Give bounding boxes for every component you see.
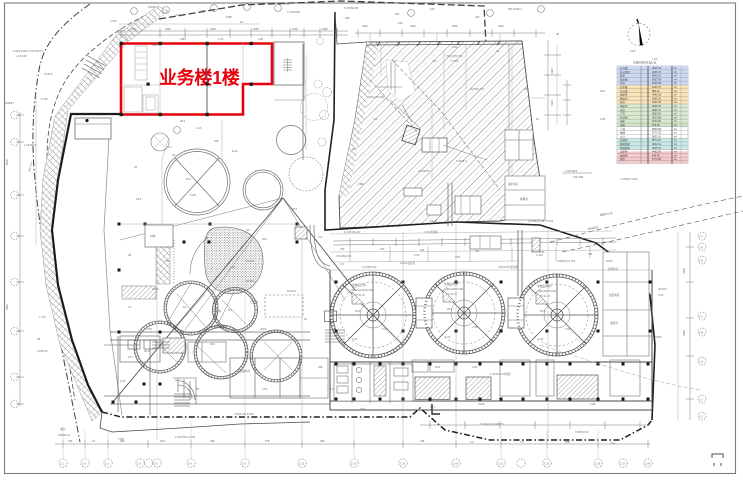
svg-text:1.3X45.6: 1.3X45.6 <box>456 159 467 163</box>
svg-text:办公用房: 办公用房 <box>620 70 631 74</box>
svg-text:1750: 1750 <box>146 327 152 331</box>
svg-text:进水泵房: 进水泵房 <box>508 182 519 186</box>
svg-text:29.5: 29.5 <box>360 407 366 411</box>
svg-text:985: 985 <box>120 439 125 443</box>
svg-text:5600: 5600 <box>5 159 9 165</box>
svg-text:综合楼: 综合楼 <box>620 66 628 70</box>
svg-text:1.3X: 1.3X <box>445 335 451 339</box>
svg-text:387.5/269.4: 387.5/269.4 <box>508 7 522 11</box>
svg-text:9822.41: 9822.41 <box>652 135 662 138</box>
svg-text:X.05: X.05 <box>382 327 388 331</box>
svg-text:0.9X: 0.9X <box>658 293 664 297</box>
svg-text:9565.80: 9565.80 <box>652 113 662 116</box>
svg-text:X.05: X.05 <box>414 253 420 257</box>
svg-text:29.75m: 29.75m <box>246 279 255 283</box>
svg-text:29.9: 29.9 <box>160 439 166 443</box>
svg-text:X9.05: X9.05 <box>430 219 437 223</box>
svg-text:1-C: 1-C <box>60 462 64 466</box>
svg-text:2946.47: 2946.47 <box>652 71 662 74</box>
svg-text:4000: 4000 <box>498 24 504 28</box>
svg-text:m²: m² <box>674 143 677 146</box>
svg-text:430: 430 <box>398 21 403 25</box>
svg-text:588: 588 <box>565 440 570 444</box>
svg-text:1-B: 1-B <box>699 331 703 335</box>
svg-text:400: 400 <box>395 12 400 16</box>
svg-text:760: 760 <box>380 247 385 251</box>
svg-text:2980: 2980 <box>682 330 686 336</box>
svg-text:29.5: 29.5 <box>435 365 441 369</box>
svg-text:938: 938 <box>345 16 350 20</box>
svg-text:1-D: 1-D <box>699 259 703 263</box>
svg-text:1.3X: 1.3X <box>120 379 126 383</box>
svg-text:2.5XX705 配水井: 2.5XX705 配水井 <box>498 265 518 269</box>
svg-text:8574.87: 8574.87 <box>652 139 662 142</box>
svg-text:1.3X: 1.3X <box>352 337 358 341</box>
svg-text:xS: xS <box>92 439 95 443</box>
svg-text:业务楼1楼: 业务楼1楼 <box>159 67 240 88</box>
svg-text:m²: m² <box>674 82 677 85</box>
svg-text:XX750 机修间: XX750 机修间 <box>210 325 227 329</box>
svg-text:XX05: XX05 <box>655 335 662 339</box>
svg-text:3921.60: 3921.60 <box>652 101 662 104</box>
svg-text:广场: 广场 <box>620 127 626 131</box>
svg-text:4000: 4000 <box>452 24 458 28</box>
svg-text:XX9: XX9 <box>455 255 460 259</box>
svg-text:4.05: 4.05 <box>230 265 236 269</box>
svg-text:5400: 5400 <box>165 27 171 31</box>
svg-text:1800: 1800 <box>322 27 328 31</box>
svg-text:m²: m² <box>674 154 677 157</box>
svg-text:97Q-27/9.7Q9: 97Q-27/9.7Q9 <box>368 95 385 99</box>
svg-text:298: 298 <box>210 439 215 443</box>
svg-text:8495.26: 8495.26 <box>652 97 662 100</box>
svg-text:15000: 15000 <box>148 5 156 9</box>
svg-text:1-27: 1-27 <box>620 462 626 466</box>
svg-text:宿舍楼: 宿舍楼 <box>620 77 628 81</box>
svg-text:0.98: 0.98 <box>258 37 264 41</box>
svg-text:4.6X0.52: 4.6X0.52 <box>37 349 48 353</box>
svg-text:499.99: 499.99 <box>652 154 660 157</box>
svg-text:4.5X: 4.5X <box>262 387 268 391</box>
svg-text:建筑面积: 建筑面积 <box>620 142 631 146</box>
svg-text:7.0: 7.0 <box>520 440 524 444</box>
svg-text:容积率: 容积率 <box>620 150 628 154</box>
svg-text:4800: 4800 <box>5 304 9 310</box>
svg-text:1-1: 1-1 <box>699 398 703 402</box>
svg-text:885.91: 885.91 <box>652 90 660 93</box>
svg-text:m²: m² <box>674 151 677 154</box>
svg-text:Tw/8: Tw/8 <box>190 193 196 197</box>
svg-text:1-21: 1-21 <box>498 462 504 466</box>
svg-text:193.7/08: 193.7/08 <box>573 175 584 179</box>
svg-text:298: 298 <box>320 439 325 443</box>
svg-text:1.3XX: 1.3XX <box>536 253 543 257</box>
svg-text:综合楼: 综合楼 <box>620 89 628 93</box>
svg-text:m²: m² <box>674 86 677 89</box>
svg-text:4693.18: 4693.18 <box>652 94 662 97</box>
svg-text:1-3X: 1-3X <box>652 57 658 61</box>
svg-text:1-F: 1-F <box>699 235 703 239</box>
svg-text:4.7X05(平) 38.7X9.09: 4.7X05(平) 38.7X9.09 <box>528 219 554 223</box>
svg-text:X05: X05 <box>318 365 323 369</box>
svg-text:938: 938 <box>152 43 157 47</box>
svg-text:1-29.5XXX: 1-29.5XXX <box>24 143 37 147</box>
svg-text:29.5XX: 29.5XX <box>658 287 667 291</box>
svg-text:6m: 6m <box>183 305 187 309</box>
svg-text:密度: 密度 <box>620 157 626 161</box>
svg-text:1-9: 1-9 <box>242 462 246 466</box>
svg-text:1.3X: 1.3X <box>196 126 202 130</box>
svg-text:32.4X9.57: 32.4X9.57 <box>418 169 430 173</box>
svg-text:752: 752 <box>68 439 73 443</box>
svg-text:7.3X05(X) X.709: 7.3X05(X) X.709 <box>556 259 576 263</box>
svg-text:2x8700 wr: 2x8700 wr <box>58 433 70 437</box>
svg-text:8410.36: 8410.36 <box>652 82 662 85</box>
svg-text:29.5: 29.5 <box>540 309 546 313</box>
svg-text:1-12: 1-12 <box>299 462 305 466</box>
svg-text:m²: m² <box>674 109 677 112</box>
svg-text:29.5: 29.5 <box>262 237 268 241</box>
svg-text:1.3X05(X 1.02): 1.3X05(X 1.02) <box>620 177 638 181</box>
svg-text:生物反应池3: 生物反应池3 <box>537 284 552 288</box>
svg-text:6914.58: 6914.58 <box>652 116 662 119</box>
svg-text:仓库: 仓库 <box>620 108 626 112</box>
svg-text:2980: 2980 <box>682 268 686 274</box>
svg-text:5777.52: 5777.52 <box>652 132 662 135</box>
svg-text:m²: m² <box>674 90 677 93</box>
svg-text:m²: m² <box>674 78 677 81</box>
svg-text:X.05: X.05 <box>565 327 571 331</box>
svg-text:38.5: 38.5 <box>292 207 298 211</box>
svg-text:X.3X9/4.6 X=398.75: X.3X9/4.6 X=398.75 <box>480 422 504 426</box>
svg-text:总面积: 总面积 <box>620 138 628 142</box>
svg-text:9714.52: 9714.52 <box>652 120 662 123</box>
svg-text:575: 575 <box>265 439 270 443</box>
svg-text:4.05(9.4X) 9.8X2: 4.05(9.4X) 9.8X2 <box>234 412 254 416</box>
svg-text:传达室: 传达室 <box>620 115 628 119</box>
svg-text:9.0: 9.0 <box>176 13 180 17</box>
svg-text:753.82: 753.82 <box>652 124 660 127</box>
svg-text:配电间: 配电间 <box>620 96 628 100</box>
svg-text:7.7XFS100: 7.7XFS100 <box>287 10 301 14</box>
svg-text:0.9X: 0.9X <box>472 365 478 369</box>
svg-text:6820.68: 6820.68 <box>652 128 662 131</box>
svg-text:X9.7: X9.7 <box>430 405 436 409</box>
svg-text:2815.79: 2815.79 <box>652 67 662 70</box>
svg-text:XX-9.5: XX-9.5 <box>246 259 254 263</box>
svg-text:29.5: 29.5 <box>447 307 453 311</box>
svg-text:6837.99: 6837.99 <box>652 78 662 81</box>
svg-text:7x8700=XX: 7x8700=XX <box>575 430 589 434</box>
svg-text:变配电间: 变配电间 <box>609 293 620 297</box>
svg-text:m²: m² <box>674 97 677 100</box>
svg-text:鼓风机房: 鼓风机房 <box>608 267 619 271</box>
svg-text:X=3.05(9.4X): X=3.05(9.4X) <box>336 254 351 258</box>
svg-text:污泥井: 污泥井 <box>250 300 258 304</box>
svg-text:1.3X: 1.3X <box>538 337 544 341</box>
svg-text:3205.40: 3205.40 <box>652 105 662 108</box>
svg-text:1-23: 1-23 <box>544 462 550 466</box>
svg-text:m²: m² <box>674 71 677 74</box>
svg-text:9.7: 9.7 <box>168 145 172 149</box>
svg-text:0.98: 0.98 <box>590 402 596 406</box>
svg-text:门卫: 门卫 <box>620 112 626 116</box>
svg-text:30009.7: 30009.7 <box>5 101 15 105</box>
svg-text:1-3: 1-3 <box>137 462 141 466</box>
svg-text:X.05: X.05 <box>600 117 606 121</box>
svg-text:7.7X2: 7.7X2 <box>39 315 46 319</box>
svg-text:X9.5: X9.5 <box>136 197 142 201</box>
svg-text:7xxL: 7xxL <box>610 441 616 445</box>
svg-text:6840.21: 6840.21 <box>652 75 662 78</box>
svg-text:1-26: 1-26 <box>595 462 601 466</box>
svg-text:绿化: 绿化 <box>620 119 626 123</box>
svg-text:1-3.05(9.4X): 1-3.05(9.4X) <box>362 265 377 269</box>
svg-text:20.7: 20.7 <box>128 355 134 359</box>
svg-text:2750: 2750 <box>130 27 136 31</box>
svg-text:锅炉房: 锅炉房 <box>620 104 628 108</box>
svg-text:2.750: 2.750 <box>110 19 117 23</box>
svg-text:1380: 1380 <box>226 15 232 19</box>
svg-text:1-6: 1-6 <box>188 462 192 466</box>
svg-text:m²: m² <box>674 113 677 116</box>
svg-text:m²: m² <box>674 158 677 161</box>
svg-text:m²: m² <box>674 67 677 70</box>
svg-text:1-16: 1-16 <box>400 462 406 466</box>
svg-text:1-E: 1-E <box>699 246 703 250</box>
svg-text:-7.708: -7.708 <box>40 97 48 101</box>
svg-text:938.1: 938.1 <box>180 37 187 41</box>
svg-text:污泥脱水间: 污泥脱水间 <box>237 369 250 373</box>
svg-text:绿地率: 绿地率 <box>620 153 628 157</box>
svg-text:6772.68: 6772.68 <box>652 158 662 161</box>
svg-text:38.2: 38.2 <box>180 119 186 123</box>
svg-text:2.4XX705 +1.105: 2.4XX705 +1.105 <box>175 435 196 439</box>
svg-text:1-2: 1-2 <box>699 415 703 419</box>
svg-text:1.3: 1.3 <box>330 387 334 391</box>
svg-text:7.7X05: 7.7X05 <box>450 59 459 63</box>
svg-text:1.3X9/4.6 XX管廊: 1.3X9/4.6 XX管廊 <box>490 372 511 376</box>
svg-text:m²: m² <box>674 147 677 150</box>
svg-text:29.5: 29.5 <box>355 309 361 313</box>
svg-text:m²: m² <box>674 128 677 131</box>
svg-text:400: 400 <box>475 15 480 19</box>
svg-text:3050: 3050 <box>253 27 259 31</box>
svg-text:298: 298 <box>420 439 425 443</box>
svg-text:2400: 2400 <box>292 27 298 31</box>
svg-text:1-19: 1-19 <box>453 462 459 466</box>
svg-text:X=30.5: X=30.5 <box>44 72 53 76</box>
svg-text:kxxk: kxxk <box>232 149 238 153</box>
svg-text:3.05: 3.05 <box>452 45 458 49</box>
svg-text:X.0: X.0 <box>340 262 344 266</box>
svg-text:1Pa/4.0: 1Pa/4.0 <box>287 289 296 293</box>
svg-text:1860: 1860 <box>550 100 554 106</box>
svg-text:38.4: 38.4 <box>210 342 216 346</box>
svg-text:1-13: 1-13 <box>351 462 357 466</box>
svg-text:泵房: 泵房 <box>620 100 626 104</box>
svg-text:394: 394 <box>588 252 593 256</box>
svg-text:42M×22M×6.5M: 42M×22M×6.5M <box>444 287 463 291</box>
svg-text:m²: m² <box>674 101 677 104</box>
svg-text:m²: m² <box>674 116 677 119</box>
svg-text:(都st: (都st <box>60 427 66 431</box>
svg-text:0.9X: 0.9X <box>630 49 636 53</box>
svg-text:29.5X: 29.5X <box>152 287 159 291</box>
svg-text:240: 240 <box>430 7 435 11</box>
svg-text:30m9: 30m9 <box>260 327 267 331</box>
svg-text:760: 760 <box>432 59 437 63</box>
svg-text:R=0: R=0 <box>186 177 191 181</box>
svg-text:+4.3X,29: +4.3X,29 <box>16 54 27 58</box>
svg-text:1-28: 1-28 <box>645 462 651 466</box>
svg-text:用地面积: 用地面积 <box>620 146 631 150</box>
svg-text:29.05: 29.05 <box>606 259 613 263</box>
svg-text:4230.74: 4230.74 <box>652 86 662 89</box>
svg-text:X-9: X-9 <box>318 235 323 239</box>
svg-text:1-A: 1-A <box>699 360 703 364</box>
svg-text:2.4X9.4 309.4 709.2XXX7: 2.4X9.4 309.4 709.2XXX7 <box>13 49 44 53</box>
svg-text:42M×22.0M×6.5M: 42M×22.0M×6.5M <box>352 288 373 292</box>
svg-text:8095.37: 8095.37 <box>652 109 662 112</box>
svg-text:值班室: 值班室 <box>620 93 628 97</box>
svg-text:m²: m² <box>674 94 677 97</box>
svg-text:4000: 4000 <box>362 24 368 28</box>
svg-text:车库: 车库 <box>620 81 626 85</box>
svg-text:5.7X9/93.05: 5.7X9/93.05 <box>344 6 359 10</box>
svg-text:X.05: X.05 <box>472 325 478 329</box>
svg-text:合计: 合计 <box>620 134 626 138</box>
svg-text:m²: m² <box>674 124 677 127</box>
svg-text:m²: m² <box>674 132 677 135</box>
svg-text:97Q-27/9.7QX: 97Q-27/9.7QX <box>446 54 463 58</box>
svg-text:道路: 道路 <box>620 123 626 127</box>
svg-text:4000: 4000 <box>410 24 416 28</box>
svg-text:加药间: 加药间 <box>610 321 618 325</box>
svg-text:0.9: 0.9 <box>470 440 474 444</box>
svg-text:m²: m² <box>674 139 677 142</box>
svg-text:脱水: 脱水 <box>216 309 222 313</box>
svg-text:1-A: 1-A <box>82 462 86 466</box>
svg-text:5400: 5400 <box>210 27 216 31</box>
svg-text:29.5: 29.5 <box>600 89 606 93</box>
svg-text:X.0: X.0 <box>246 228 250 232</box>
svg-text:m²: m² <box>674 135 677 138</box>
svg-text:1-2: 1-2 <box>105 462 109 466</box>
svg-text:1380: 1380 <box>358 182 364 186</box>
svg-text:750: 750 <box>340 247 345 251</box>
svg-text:2.3XX48.9: 2.3XX48.9 <box>565 169 578 173</box>
svg-text:X05: X05 <box>214 139 219 143</box>
svg-text:m²: m² <box>674 75 677 78</box>
svg-text:7.05: 7.05 <box>164 259 170 263</box>
svg-text:1-3.05 36.10C: 1-3.05 36.10C <box>344 230 361 234</box>
svg-text:X9: X9 <box>496 49 500 53</box>
svg-text:1280: 1280 <box>200 9 206 13</box>
svg-text:9452.95: 9452.95 <box>652 151 662 154</box>
svg-text:主要经济技术指标表: 主要经济技术指标表 <box>633 61 657 65</box>
svg-text:3822.12: 3822.12 <box>652 143 662 146</box>
svg-text:3515.72: 3515.72 <box>652 147 662 150</box>
svg-text:1-C: 1-C <box>699 315 703 319</box>
svg-text:38.10: 38.10 <box>144 349 151 353</box>
svg-text:2280: 2280 <box>550 68 554 74</box>
svg-text:X2: X2 <box>128 305 132 309</box>
svg-text:食堂: 食堂 <box>620 74 626 78</box>
svg-text:m²: m² <box>674 105 677 108</box>
svg-text:kg/70%+0.5: kg/70%+0.5 <box>470 87 484 91</box>
svg-text:格栅间: 格栅间 <box>520 197 528 201</box>
svg-text:m²: m² <box>674 120 677 123</box>
svg-text:29.05: 29.05 <box>478 402 485 406</box>
svg-text:1-5: 1-5 <box>154 462 158 466</box>
svg-text:1.02 弃流井: 1.02 弃流井 <box>424 230 438 234</box>
svg-text:120: 120 <box>373 117 378 121</box>
svg-text:2#井: 2#井 <box>150 234 156 238</box>
svg-text:1.3X: 1.3X <box>218 37 224 41</box>
svg-text:42M×22M×6.5M: 42M×22M×6.5M <box>537 289 556 293</box>
svg-text:围墙: 围墙 <box>620 131 626 135</box>
svg-text:业务楼: 业务楼 <box>620 85 628 89</box>
svg-text:5m: 5m <box>228 308 232 312</box>
